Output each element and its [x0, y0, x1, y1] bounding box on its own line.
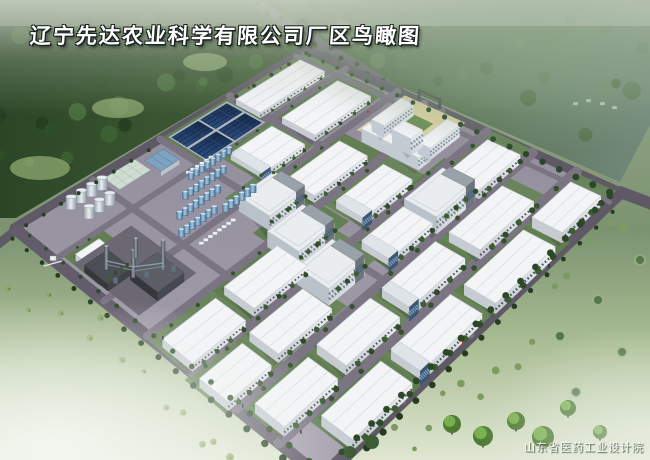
designer-watermark: 山东省医药工业设计院: [524, 439, 644, 455]
site-plan-canvas: [0, 0, 650, 460]
aerial-rendering: 辽宁先达农业科学有限公司厂区鸟瞰图 山东省医药工业设计院: [0, 0, 650, 460]
page-title: 辽宁先达农业科学有限公司厂区鸟瞰图: [29, 20, 451, 50]
